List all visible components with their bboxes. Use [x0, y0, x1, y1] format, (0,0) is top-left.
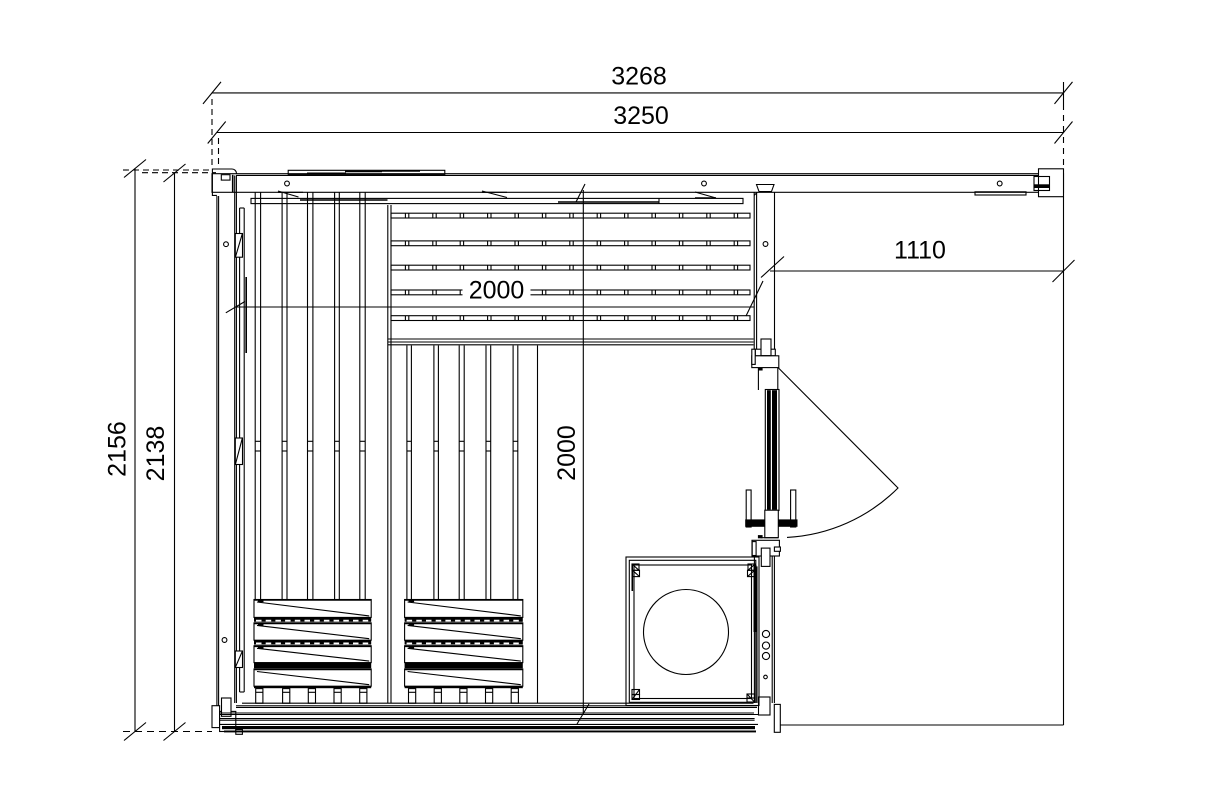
svg-text:2000: 2000	[553, 425, 581, 481]
svg-text:2138: 2138	[142, 426, 170, 482]
svg-text:1110: 1110	[894, 237, 946, 265]
svg-text:3268: 3268	[611, 62, 667, 90]
svg-text:2156: 2156	[104, 421, 132, 477]
svg-text:3250: 3250	[613, 102, 669, 130]
svg-text:2000: 2000	[469, 277, 525, 305]
